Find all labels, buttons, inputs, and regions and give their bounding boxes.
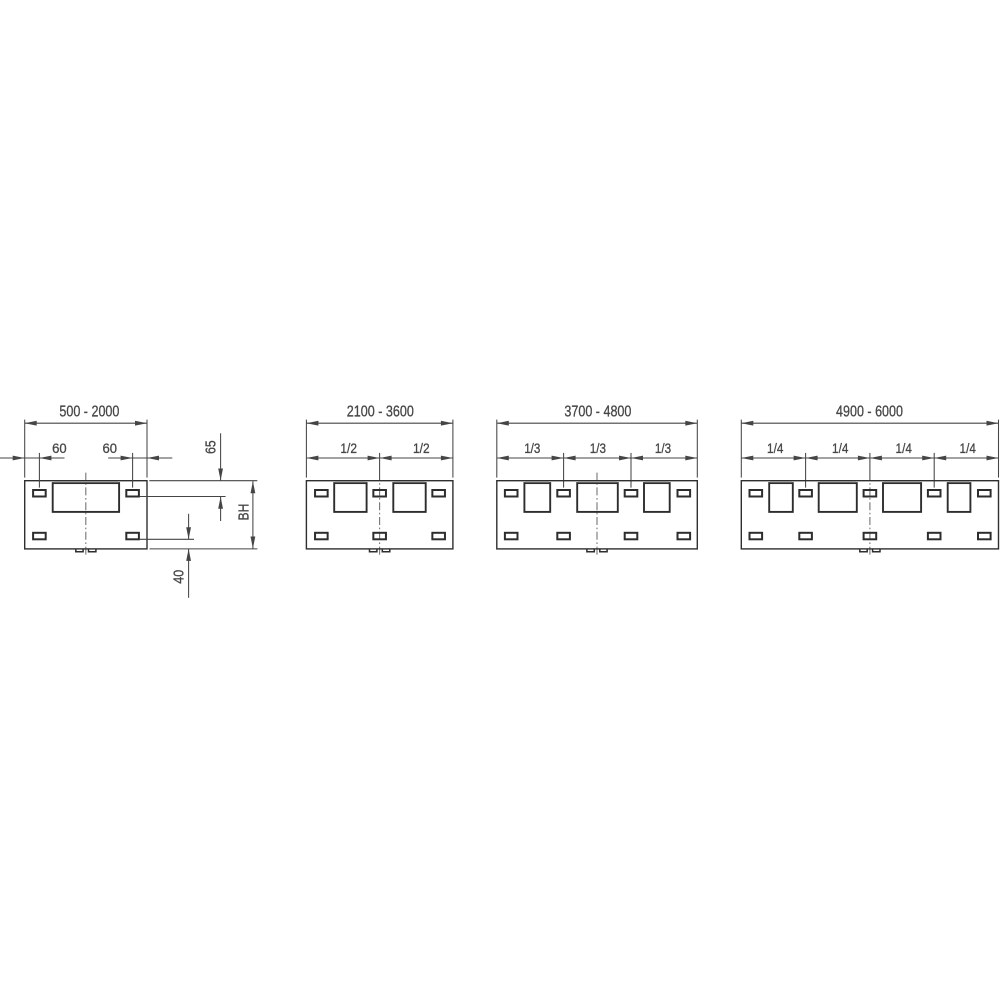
svg-text:1/3: 1/3: [655, 441, 671, 457]
svg-text:60: 60: [52, 441, 67, 457]
svg-text:40: 40: [170, 570, 187, 584]
svg-text:1/4: 1/4: [767, 441, 783, 457]
svg-text:BH: BH: [235, 504, 252, 521]
svg-text:1/4: 1/4: [960, 441, 976, 457]
svg-text:1/4: 1/4: [896, 441, 912, 457]
svg-text:60: 60: [103, 441, 118, 457]
svg-text:1/4: 1/4: [832, 441, 848, 457]
svg-text:1/2: 1/2: [340, 441, 357, 457]
svg-text:3700 - 4800: 3700 - 4800: [564, 403, 631, 420]
svg-text:65: 65: [203, 440, 220, 454]
svg-text:2100 - 3600: 2100 - 3600: [347, 403, 414, 420]
svg-text:1/2: 1/2: [413, 441, 430, 457]
svg-text:1/3: 1/3: [590, 441, 606, 457]
svg-text:1/3: 1/3: [524, 441, 540, 457]
svg-text:4900 - 6000: 4900 - 6000: [836, 403, 903, 420]
svg-text:500 - 2000: 500 - 2000: [59, 403, 119, 420]
